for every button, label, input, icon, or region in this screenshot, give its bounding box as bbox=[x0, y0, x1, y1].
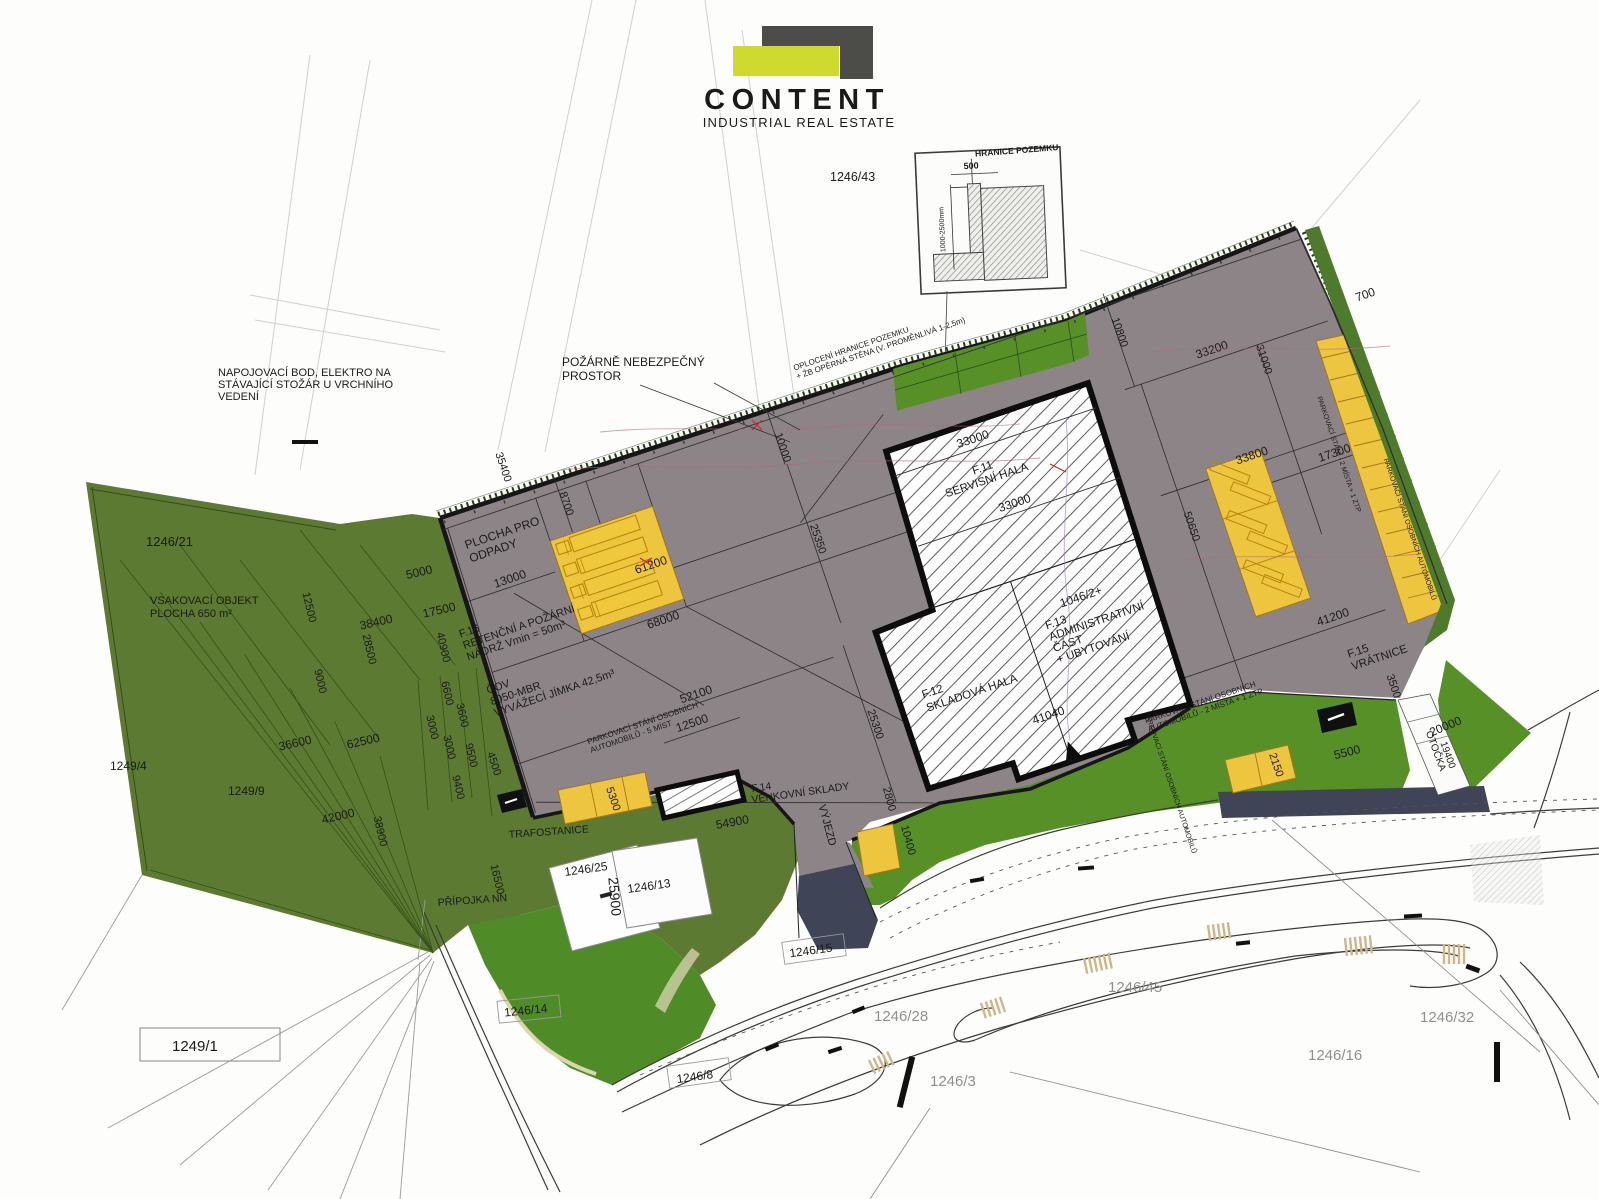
svg-text:CONTENT: CONTENT bbox=[704, 84, 890, 116]
svg-text:PLOCHA 650 m²: PLOCHA 650 m² bbox=[150, 608, 232, 620]
svg-text:VEDENÍ: VEDENÍ bbox=[218, 390, 260, 403]
svg-text:VSAKOVACÍ OBJEKT: VSAKOVACÍ OBJEKT bbox=[150, 594, 259, 607]
svg-text:POŽÁRNĚ NEBEZPEČNÝ: POŽÁRNĚ NEBEZPEČNÝ bbox=[562, 354, 705, 369]
svg-text:1246/45: 1246/45 bbox=[1108, 979, 1162, 996]
svg-text:1246/43: 1246/43 bbox=[830, 170, 875, 184]
svg-text:1249/1: 1249/1 bbox=[172, 1038, 218, 1055]
svg-text:PROSTOR: PROSTOR bbox=[562, 369, 621, 383]
svg-text:1249/4: 1249/4 bbox=[110, 759, 147, 773]
svg-text:1246/16: 1246/16 bbox=[1308, 1047, 1362, 1064]
svg-text:STÁVAJÍCÍ STOŽÁR U VRCHNÍHO: STÁVAJÍCÍ STOŽÁR U VRCHNÍHO bbox=[218, 378, 393, 391]
svg-text:1246/21: 1246/21 bbox=[146, 534, 193, 549]
svg-text:1246/28: 1246/28 bbox=[874, 1008, 928, 1025]
svg-text:1246/32: 1246/32 bbox=[1420, 1009, 1474, 1026]
svg-text:1249/9: 1249/9 bbox=[228, 784, 265, 798]
svg-text:25900: 25900 bbox=[605, 876, 624, 916]
svg-text:1246/3: 1246/3 bbox=[930, 1073, 976, 1090]
svg-text:NAPOJOVACÍ BOD, ELEKTRO NA: NAPOJOVACÍ BOD, ELEKTRO NA bbox=[218, 366, 391, 379]
svg-text:INDUSTRIAL REAL ESTATE: INDUSTRIAL REAL ESTATE bbox=[703, 115, 896, 130]
